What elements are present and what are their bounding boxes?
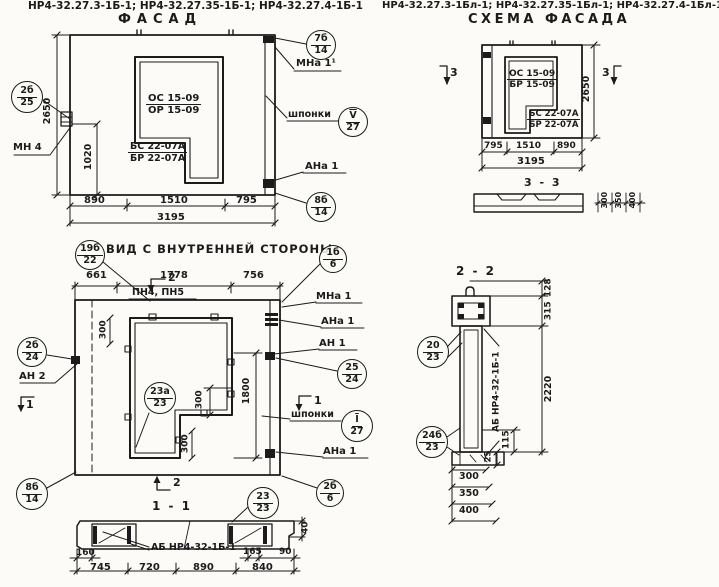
section-2-2-title: 2 - 2 (456, 265, 496, 278)
callout-top: 25 (342, 363, 361, 375)
facade-title: ФАСАД (118, 13, 202, 27)
dim-720: 720 (139, 563, 160, 574)
callout-V-27: V 27 (338, 107, 368, 137)
callout-bottom: 24 (22, 353, 41, 364)
callout-2b-24: 2б 24 (17, 337, 47, 367)
callout-bottom: 23 (150, 399, 169, 410)
facade-panel-mark-lower: БС 22-07А БР 22-07А (128, 141, 187, 164)
dim-3195-schema: 3195 (517, 157, 545, 168)
linework-layer (0, 0, 719, 587)
dim-1800: 1800 (242, 376, 252, 406)
dim-890-schema: 890 (557, 142, 576, 151)
callout-top: 2б (17, 86, 36, 98)
dim-90: 90 (279, 548, 292, 557)
callout-bottom: 23 (423, 353, 442, 364)
section-flag-3-left: 3 (450, 67, 458, 79)
schema-panel-mark-upper: ОС 15-09 БР 15-09 (507, 69, 557, 90)
dim-2650-facade: 2650 (43, 94, 53, 128)
section-flag-3-right: 3 (602, 67, 610, 79)
schema-panel-mark-lower: БС 22-07А БР 22-07А (527, 109, 580, 130)
callout-I-27: I 27 (341, 410, 373, 442)
shponki-label-facade: шпонки (288, 110, 331, 120)
callout-top: V (346, 111, 359, 123)
callout-bottom: 27 (347, 427, 366, 438)
dim-25: 25 (485, 447, 494, 465)
cut-dim-350: 350 (615, 189, 623, 211)
section-flag-2-top: 2 (168, 272, 176, 284)
callout-top: 8б (22, 483, 41, 495)
label-pn4-pn5: ПН4, ПН5 (132, 288, 184, 298)
anchor-label-ana1-inner: АНа 1 (321, 317, 354, 328)
callout-bottom: 14 (311, 46, 330, 57)
callout-bottom: 23 (253, 504, 272, 515)
cut-dim-400: 400 (629, 189, 637, 211)
dim-1510-schema: 1510 (516, 142, 541, 151)
callout-top: 2б (320, 482, 339, 494)
panel-mark-or: ОР 15-09 (146, 105, 201, 116)
dim-115: 115 (502, 429, 511, 451)
callout-8b-14-inner: 8б 14 (16, 478, 48, 510)
panel-mark-br: БР 22-07А (527, 120, 580, 130)
dim-1020: 1020 (84, 140, 94, 174)
anchor-label-an2: АН 2 (19, 372, 46, 383)
callout-bottom: 27 (343, 123, 362, 134)
anchor-label-an1: АН 1 (319, 339, 346, 350)
callout-top: I (352, 415, 362, 427)
callout-20-23: 20 23 (417, 336, 449, 368)
dim-128: 128 (544, 277, 553, 299)
callout-bottom: 14 (22, 495, 41, 506)
section-flag-1-right: 1 (314, 395, 322, 407)
dim-795-schema: 795 (484, 142, 503, 151)
panel-mark-bs: БС 22-07А (128, 141, 187, 153)
callout-bottom: 23 (422, 443, 441, 454)
dim-3195: 3195 (157, 213, 185, 224)
panel-mark-bs: БС 22-07А (527, 109, 580, 120)
callout-23a-23: 23а 23 (144, 382, 176, 414)
dim-890: 890 (84, 196, 105, 207)
facade-panel-mark-upper: ОС 15-09 ОР 15-09 (146, 93, 201, 116)
drawing-sheet: НР4-32.27.3-1Б-1; НР4-32.27.35-1Б-1; НР4… (0, 0, 719, 587)
section-1-1-title: 1 - 1 (152, 500, 192, 513)
dim-2220: 2220 (544, 374, 554, 404)
anchor-label-ana1b-inner: АНа 1 (323, 447, 356, 458)
callout-7b-14: 7б 14 (306, 30, 336, 60)
anchor-label-mna1-inner: МНа 1 (316, 292, 352, 303)
dim-160: 160 (76, 549, 95, 558)
callout-bottom: 22 (80, 256, 99, 267)
dim-840: 840 (252, 563, 273, 574)
dim-1510: 1510 (160, 196, 188, 207)
section-flag-2-bottom: 2 (173, 477, 181, 489)
dim-40: 40 (301, 518, 310, 538)
callout-bottom: 25 (17, 98, 36, 109)
dim-2650-schema: 2650 (582, 72, 592, 106)
callout-2b-25: 2б 25 (11, 81, 43, 113)
callout-top: 24б (419, 431, 445, 443)
section-flag-1-left: 1 (26, 399, 34, 411)
dim-300-s22: 300 (459, 472, 479, 482)
inner-view-title: ВИД С ВНУТРЕННЕЙ СТОРОНЫ (106, 243, 333, 255)
callout-top: 19б (77, 244, 103, 256)
callout-24b-23: 24б 23 (416, 426, 448, 458)
callout-bottom: 24 (342, 375, 361, 386)
anchor-label-ana1-facade: АНа 1 (305, 162, 338, 173)
callout-bottom: 14 (311, 208, 330, 219)
dim-745: 745 (90, 563, 111, 574)
anchor-label-mn4: МН 4 (13, 143, 42, 154)
dim-756: 756 (243, 271, 264, 282)
s11-part-label: АБ НР4-32-1Б-1 (151, 543, 236, 553)
dim-165: 165 (243, 548, 262, 557)
dim-890-s11: 890 (193, 563, 214, 574)
shponki-label-inner: шпонки (291, 410, 334, 420)
callout-top: 1б (323, 248, 342, 260)
callout-top: 23 (253, 492, 272, 504)
dim-350-s22: 350 (459, 489, 479, 499)
callout-1b-6: 1б 6 (319, 245, 347, 273)
callout-top: 20 (423, 341, 442, 353)
dim-300-top: 300 (99, 317, 108, 343)
callout-top: 7б (311, 34, 330, 46)
callout-25-24: 25 24 (337, 359, 367, 389)
callout-8b-14-facade: 8б 14 (306, 192, 336, 222)
dim-300-step: 300 (195, 387, 204, 413)
header-right: НР4-32.27.3-1Бл-1; НР4-32.27.35-1Бл-1; Н… (382, 1, 719, 12)
section-3-3-title: 3 - 3 (524, 177, 562, 189)
dim-300-bottom: 300 (181, 431, 190, 457)
schema-title: СХЕМА ФАСАДА (468, 13, 630, 27)
cut-dim-300: 300 (601, 189, 609, 211)
panel-mark-os: ОС 15-09 (146, 93, 201, 105)
callout-23-23: 23 23 (247, 487, 279, 519)
callout-top: 23а (147, 387, 173, 399)
anchor-label-mna1: МНа 1¹ (296, 59, 336, 70)
callout-top: 8б (311, 196, 330, 208)
panel-mark-os: ОС 15-09 (507, 69, 557, 80)
callout-top: 2б (22, 341, 41, 353)
s22-part-label: АБ НР4-32-1Б-1 (492, 342, 501, 442)
dim-661: 661 (86, 271, 107, 282)
dim-795: 795 (236, 196, 257, 207)
inner-dims (72, 282, 283, 461)
callout-2b-6: 2б 6 (316, 479, 344, 507)
panel-mark-br: БР 15-09 (507, 80, 556, 90)
dim-400-s22: 400 (459, 506, 479, 516)
header-left: НР4-32.27.3-1Б-1; НР4-32.27.35-1Б-1; НР4… (28, 1, 363, 12)
dim-315: 315 (544, 300, 553, 322)
callout-bottom: 6 (327, 260, 340, 271)
callout-19b-22: 19б 22 (75, 240, 105, 270)
callout-bottom: 6 (324, 494, 337, 505)
panel-mark-br: БР 22-07А (128, 153, 187, 164)
